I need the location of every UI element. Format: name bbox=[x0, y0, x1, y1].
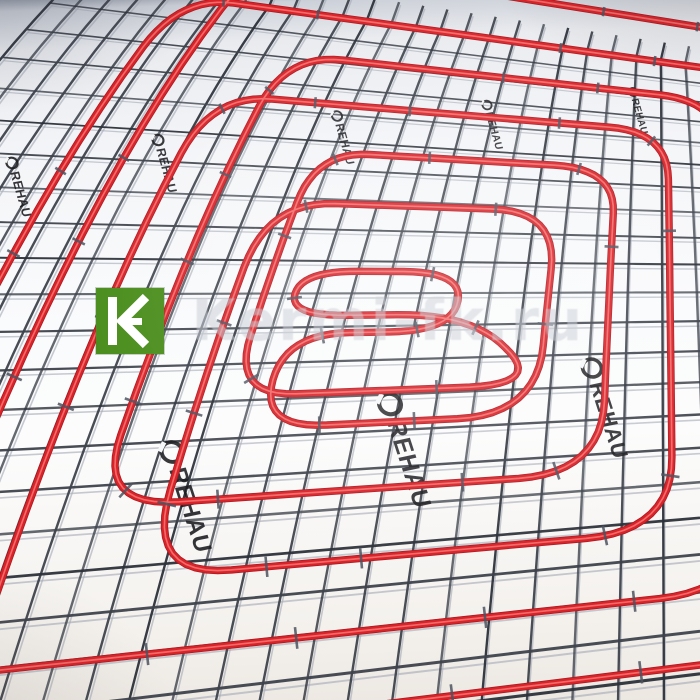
pipe-clip bbox=[315, 97, 316, 108]
pipe-clip bbox=[321, 328, 324, 343]
photo-canvas: REHAUREHAUREHAUREHAUREHAUREHAUREHAUREHAU… bbox=[0, 0, 700, 700]
pipe-clip bbox=[462, 473, 463, 492]
pipe-clip bbox=[295, 627, 297, 649]
pipe-clip bbox=[560, 43, 561, 53]
pipe-clip bbox=[697, 22, 699, 31]
rehau-brand-label: REHAU bbox=[7, 170, 35, 218]
pipe-clip bbox=[654, 56, 655, 66]
pipe-clip bbox=[605, 246, 619, 247]
pipe-clip bbox=[597, 83, 598, 94]
pipe-clip bbox=[305, 200, 307, 213]
pipe-clip bbox=[484, 607, 486, 628]
pipe-clip bbox=[217, 490, 218, 509]
pipe-clip bbox=[266, 557, 268, 577]
kermi-logo-k-glyph bbox=[96, 288, 164, 354]
pipe-clip bbox=[633, 591, 635, 612]
pipe-clip bbox=[603, 7, 604, 16]
pipe-clip bbox=[431, 267, 434, 281]
pipe-clip bbox=[503, 72, 504, 82]
pipe-clip bbox=[146, 643, 148, 665]
pipe-clip bbox=[538, 323, 553, 325]
pipe-clip bbox=[429, 152, 430, 164]
pipe-clip bbox=[414, 412, 415, 429]
kermi-logo-badge bbox=[96, 288, 164, 354]
pipe-clip bbox=[317, 10, 318, 19]
pipe-clip bbox=[495, 203, 496, 216]
pipe-clip bbox=[416, 322, 419, 337]
pipe-clip bbox=[436, 380, 437, 397]
pipe-clip bbox=[409, 105, 410, 116]
pipe-clip bbox=[360, 548, 362, 568]
pipe-clip bbox=[559, 117, 560, 128]
